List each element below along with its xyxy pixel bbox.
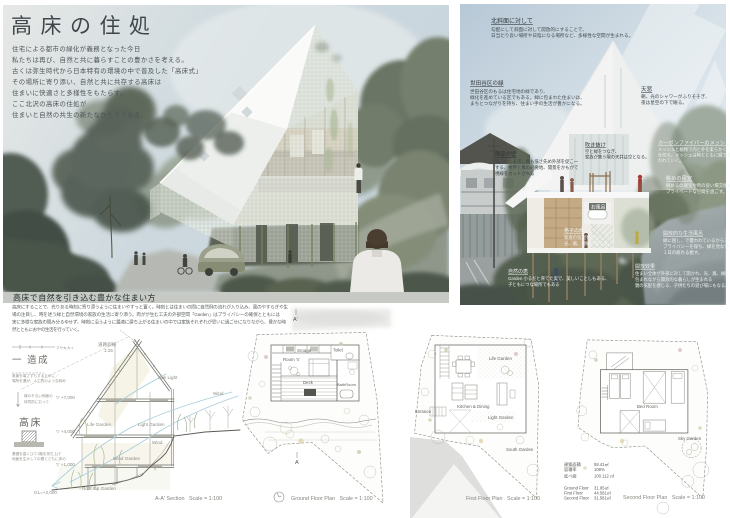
svg-text:Bed Room: Bed Room (637, 404, 658, 409)
svg-text:朝、光のシャワーがふりそそぎ、: 朝、光のシャワーがふりそそぎ、 (641, 93, 710, 100)
svg-text:開放的な生活風呂: 開放的な生活風呂 (663, 230, 703, 237)
svg-text:Roof top Garden: Roof top Garden (82, 486, 116, 491)
svg-text:BathRoom: BathRoom (337, 382, 357, 387)
svg-text:プライベートな空間を過ごす。: プライベートな空間を過ごす。 (666, 188, 727, 195)
svg-text:子ともにつな場所でもある: 子ともにつな場所でもある (508, 281, 560, 288)
svg-text:Light Garden: Light Garden (488, 415, 514, 420)
svg-text:道路斜線: 道路斜線 (98, 341, 117, 348)
svg-text:First Floor Plan Scale = 1:1: First Floor Plan Scale = 1:100 (466, 496, 540, 502)
svg-text:われていく。: われていく。 (658, 157, 683, 164)
svg-text:開放效果: 開放效果 (635, 263, 655, 270)
svg-text:日当たり良い場所や日陰になる場所など、多様性な空間が生まれる: 日当たり良い場所や日陰になる場所など、多様性な空間が生まれる。 (491, 32, 633, 39)
svg-text:延べ面: 延べ面 (564, 473, 577, 480)
svg-text:住まいに快適さと多様性をもたらす。: 住まいに快適さと多様性をもたらす。 (12, 88, 127, 97)
svg-text:高床の住処: 高床の住処 (11, 15, 159, 38)
svg-text:▽ +7,000: ▽ +7,000 (56, 395, 75, 400)
svg-text:地面を生かしての間とともに床の: 地面を生かしての間とともに床の (12, 456, 66, 461)
svg-text:１日の疲れる癒す。: １日の疲れる癒す。 (663, 249, 702, 256)
svg-text:高床にすることで、光りある時刻に寄り添うように住まいやすっと: 高床にすることで、光りある時刻に寄り添うように住まいやすっと置く。時刻とは住まい… (12, 304, 288, 311)
svg-text:Garden 小るだと育てた実で、美しいことしもある、: Garden 小るだと育てた実で、美しいことしもある、 (508, 275, 609, 282)
svg-text:視線をカットされる: 視線をカットされる (495, 170, 535, 177)
svg-text:一 造成: 一 造成 (12, 354, 49, 366)
svg-text:家族が集う場の天井は空となる。: 家族が集う場の天井は空となる。 (585, 154, 649, 161)
svg-text:1:25: 1:25 (104, 348, 113, 353)
svg-text:▽ +4,000: ▽ +4,000 (56, 429, 75, 434)
svg-text:勾配にして斜面に対して開放的にすることで、: 勾配にして斜面に対して開放的にすることで、 (491, 26, 587, 33)
svg-text:空と緑をつなぎ、: 空と緑をつなぎ、 (585, 148, 619, 154)
svg-text:家族の気配を感じ、: 家族の気配を感じ、 (564, 234, 604, 241)
svg-text:世田谷区の緑: 世田谷区の緑 (470, 79, 504, 87)
svg-text:Entraice: Entraice (415, 409, 432, 414)
svg-text:Ground Floor Plan Scale = 1:: Ground Floor Plan Scale = 1:100 (291, 496, 373, 502)
svg-text:Life Garden: Life Garden (87, 422, 111, 427)
svg-text:Light Garden: Light Garden (138, 422, 165, 427)
svg-text:場の注目し、時を述う緑と自然環境の家族の生活に寄り添う。両が: 場の注目し、時を述う緑と自然環境の家族の生活に寄り添う。両がが生む工夫の外部空間… (12, 311, 280, 318)
svg-text:格子の扉: 格子の扉 (564, 227, 584, 234)
svg-text:親の気配を感じる、子供たちの遊び場にもなる。: 親の気配を感じる、子供たちの遊び場にもなる。 (635, 282, 730, 289)
svg-text:高床で自然を引き込む豊かな住まい方: 高床で自然を引き込む豊かな住まい方 (13, 293, 156, 303)
svg-text:Wind: Wind (213, 391, 224, 396)
svg-text:お風呂: お風呂 (591, 204, 606, 211)
svg-text:基礎を高くひて1階を持ち上げ: 基礎を高くひて1階を持ち上げ (12, 451, 61, 456)
svg-text:31.581㎡: 31.581㎡ (594, 495, 612, 501)
svg-text:古くは弥生時代から日本特有の環境の中で普及した「高床式」: 古くは弥生時代から日本特有の環境の中で普及した「高床式」 (12, 66, 202, 75)
svg-text:住宅による都市の緑化が義務となった今日: 住宅による都市の緑化が義務となった今日 (12, 44, 141, 53)
svg-text:住まい全体が外部に対して開かれ、光、風、緑に: 住まい全体が外部に対して開かれ、光、風、緑に (635, 270, 729, 277)
svg-text:緑に囲し、で覆われているからこそ、: 緑に囲し、で覆われているからこそ、 (663, 237, 730, 244)
svg-text:South Garden: South Garden (506, 447, 534, 452)
svg-text:容積率: 容積率 (564, 466, 577, 473)
svg-text:A: A (295, 460, 299, 466)
svg-text:眺めるの寝室や時の良い場交換め外は緑: 眺めるの寝室や時の良い場交換め外は緑 (666, 182, 730, 189)
svg-text:場所を選が、人工的のような斜め: 場所を選が、人工的のような斜め (12, 378, 66, 383)
svg-text:Toilet: Toilet (333, 348, 344, 353)
svg-text:マサキカイ: マサキカイ (56, 345, 74, 350)
svg-text:実に多様な家族の間み分るゆせず、時刻に沿うように最適に建ち上: 実に多様な家族の間み分るゆせず、時刻に沿うように最適に建ち上がる住まいの中では家… (12, 319, 286, 326)
svg-text:北斜面に対して: 北斜面に対して (491, 17, 533, 25)
svg-text:Wind Garden: Wind Garden (113, 456, 141, 461)
svg-text:Sun Light: Sun Light (158, 375, 178, 380)
svg-text:然とともにおやの生活を行っていく。: 然とともにおやの生活を行っていく。 (12, 326, 82, 333)
svg-text:夜は星空の下で眠る。: 夜は星空の下で眠る。 (641, 99, 687, 106)
svg-text:眺めの寝室: 眺めの寝室 (666, 174, 692, 182)
svg-text:Second Floor Plan Scale = 1:: Second Floor Plan Scale = 1:100 (623, 495, 705, 501)
svg-text:高床: 高床 (19, 416, 42, 429)
svg-text:100.112 ㎡: 100.112 ㎡ (594, 473, 615, 479)
svg-text:プライバシーを保ち、緑を見ながら: プライバシーを保ち、緑を見ながら (663, 243, 730, 250)
svg-text:A-A' Section Scale = 1:100: A-A' Section Scale = 1:100 (155, 496, 222, 502)
svg-text:Life Garden: Life Garden (489, 356, 513, 361)
svg-text:まちとつながりを持ち、住まい手の生活が豊かになる。: まちとつながりを持ち、住まい手の生活が豊かになる。 (470, 100, 585, 107)
svg-text:Deck: Deck (303, 380, 314, 385)
svg-text:Room 's': Room 's' (283, 357, 300, 362)
svg-text:隣家の壁: 隣家の壁 (495, 150, 517, 158)
svg-text:私たちは再び、自然と共に暮らすことの豊かさを考える。: 私たちは再び、自然と共に暮らすことの豊かさを考える。 (12, 55, 188, 64)
svg-text:▽ +1,000: ▽ +1,000 (56, 462, 75, 467)
svg-text:風景を壊さずもするために／: 風景を壊さずもするために／ (12, 373, 59, 378)
svg-text:ここ北沢の高床の住処が: ここ北沢の高床の住処が (12, 99, 87, 108)
svg-text:天窓: 天窓 (641, 85, 653, 93)
svg-text:A': A' (293, 317, 298, 323)
svg-text:その場所に寄り添い、自然と共に共存する高床は: その場所に寄り添い、自然と共に共存する高床は (12, 77, 162, 86)
svg-text:自然の恵: 自然の恵 (508, 268, 528, 275)
svg-text:Sroage: Sroage (297, 348, 312, 353)
svg-text:GL=+2,000: GL=+2,000 (34, 490, 57, 495)
svg-text:緑のそない斜面の: 緑のそない斜面の (24, 393, 53, 398)
svg-text:緑化を進めている区でもある。緑に包まれた住まいは、: 緑化を進めている区でもある。緑に包まれた住まいは、 (470, 94, 585, 101)
svg-text:Wind: Wind (152, 440, 163, 445)
svg-text:Kitchen & Dining: Kitchen & Dining (457, 404, 490, 409)
svg-text:カーボンファイバーのメッシュ: カーボンファイバーのメッシュ (658, 139, 730, 147)
svg-text:光、風、視線の扱いる。: 光、風、視線の扱いる。 (564, 240, 612, 247)
svg-text:する、視界と風の必要地、開景をかもがて: する、視界と風の必要地、開景をかもがて (495, 164, 578, 171)
svg-text:吹き抜け: 吹き抜け (585, 141, 606, 149)
svg-text:Second Floor: Second Floor (564, 496, 590, 501)
svg-text:109%: 109% (594, 467, 605, 472)
svg-text:体質的におって: 体質的におって (24, 399, 49, 404)
svg-text:住まいと自然の共生の新たなかたちとなる。: 住まいと自然の共生の新たなかたちとなる。 (12, 110, 148, 119)
svg-text:南向のしそで、高も低さ先め外部を促こ一: 南向のしそで、高も低さ先め外部を促こ一 (495, 158, 579, 165)
svg-text:世田谷区のもるは住宅地の緑であり、: 世田谷区のもるは住宅地の緑であり、 (470, 88, 548, 95)
svg-text:包まれながら開放的な暮らしが生まれる: 包まれながら開放的な暮らしが生まれる (635, 276, 712, 283)
